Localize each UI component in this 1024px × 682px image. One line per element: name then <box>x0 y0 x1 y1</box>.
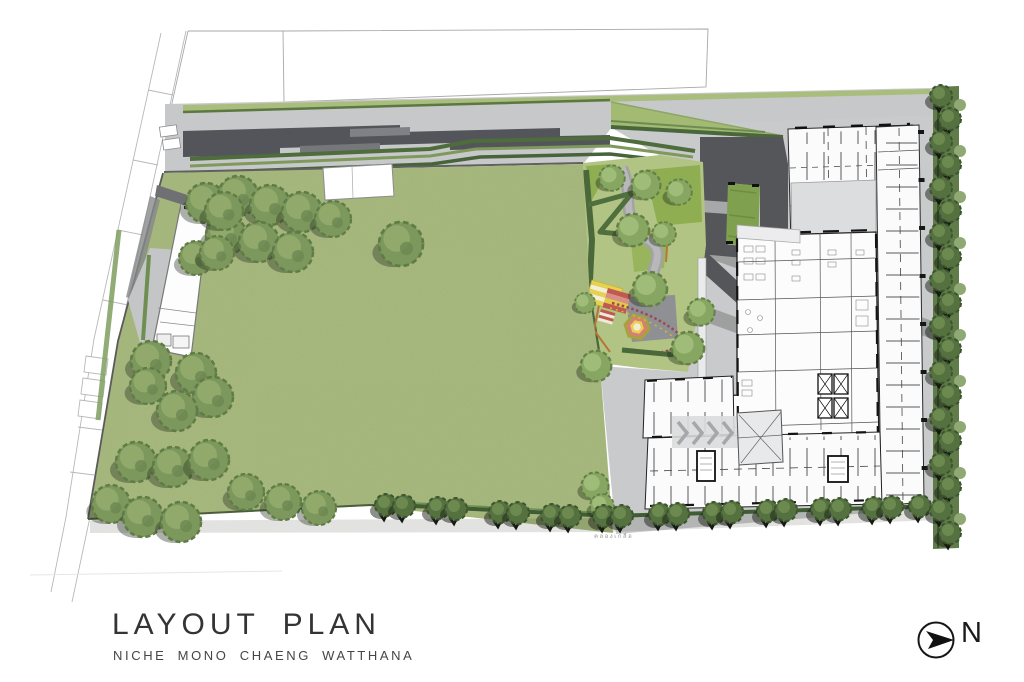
north-label: N <box>961 617 982 650</box>
project-name: NICHE MONO CHAENG WATTHANA <box>113 648 414 663</box>
north-arrow: N <box>914 616 1019 666</box>
drawing-edge-faint-line <box>30 571 282 575</box>
guard-house <box>323 164 394 200</box>
east-parking-wing <box>876 125 925 506</box>
ramp-chevrons <box>672 416 738 448</box>
layout-plan-page: คลองเกลือ LAYOUT PLAN NICHE MONO CHAENG … <box>0 0 1024 682</box>
west-canopy-walk <box>698 258 706 396</box>
site-plan-drawing <box>0 0 1024 682</box>
hatched-canopy <box>737 410 783 465</box>
north-arrow-icon <box>914 618 958 662</box>
page-title: LAYOUT PLAN <box>112 608 381 642</box>
canal-label: คลองเกลือ <box>594 531 633 541</box>
